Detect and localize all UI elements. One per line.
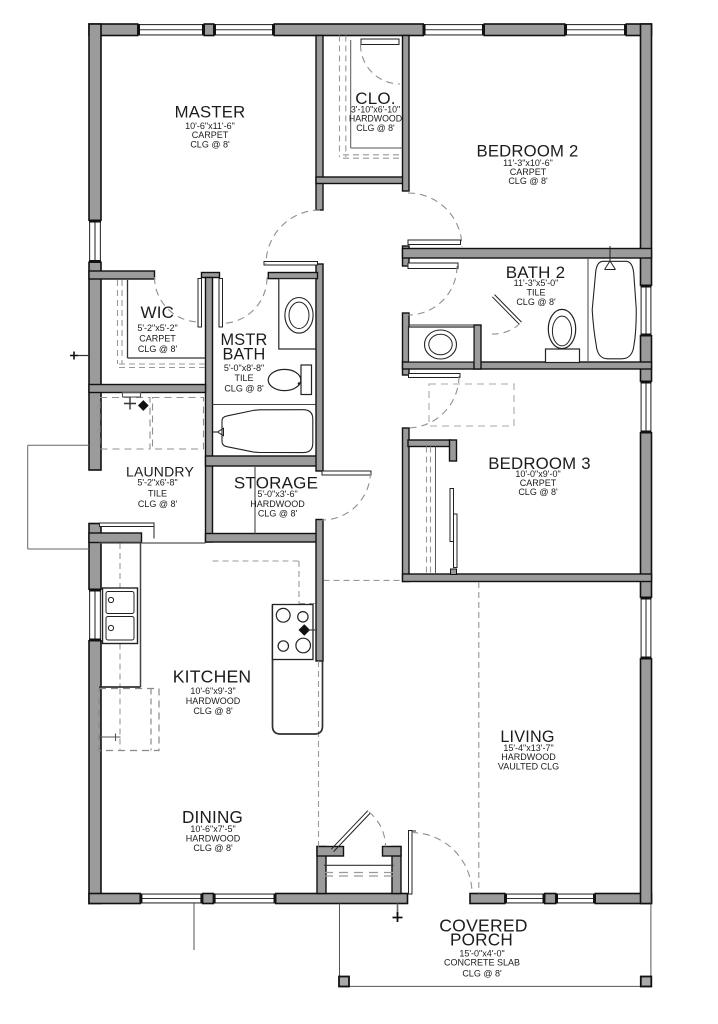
svg-text:CLG @ 8': CLG @ 8' xyxy=(508,176,548,186)
svg-text:WIC: WIC xyxy=(140,303,174,322)
svg-text:TILE: TILE xyxy=(148,488,167,498)
svg-text:MASTER: MASTER xyxy=(175,103,246,122)
svg-text:TILE: TILE xyxy=(234,373,253,383)
svg-text:CONCRETE SLAB: CONCRETE SLAB xyxy=(444,958,520,968)
svg-text:HARDWOOD: HARDWOOD xyxy=(186,696,241,706)
svg-text:5'-2"x5'-2": 5'-2"x5'-2" xyxy=(137,323,177,333)
svg-text:VAULTED CLG: VAULTED CLG xyxy=(498,762,559,772)
svg-text:CLG @ 8': CLG @ 8' xyxy=(138,344,178,354)
svg-text:CLG @ 8': CLG @ 8' xyxy=(258,508,298,518)
svg-text:CLG @ 8': CLG @ 8' xyxy=(193,843,233,853)
svg-text:KITCHEN: KITCHEN xyxy=(173,667,252,687)
svg-text:CLG @ 8': CLG @ 8' xyxy=(462,968,502,978)
svg-text:CLG @ 8': CLG @ 8' xyxy=(190,139,230,149)
svg-text:10'-6"x9'-3": 10'-6"x9'-3" xyxy=(190,686,235,696)
svg-text:PORCH: PORCH xyxy=(450,930,513,950)
svg-text:CARPET: CARPET xyxy=(139,334,176,344)
svg-text:5'-0"x3'-6": 5'-0"x3'-6" xyxy=(257,489,297,499)
svg-text:CLG @ 8': CLG @ 8' xyxy=(138,499,178,509)
svg-text:CLG @ 8': CLG @ 8' xyxy=(516,297,556,307)
svg-text:CLG @ 8': CLG @ 8' xyxy=(518,487,558,497)
svg-text:BATH: BATH xyxy=(222,345,265,363)
svg-text:CLG @ 8': CLG @ 8' xyxy=(193,706,233,716)
svg-text:5'-2"x6'-8": 5'-2"x6'-8" xyxy=(137,478,177,488)
svg-text:HARDWOOD: HARDWOOD xyxy=(250,499,305,509)
svg-text:CLG @ 8': CLG @ 8' xyxy=(356,123,395,133)
svg-text:HARDWOOD: HARDWOOD xyxy=(501,752,556,762)
svg-text:5'-0"x8'-8": 5'-0"x8'-8" xyxy=(224,363,264,373)
svg-text:CLG @ 8': CLG @ 8' xyxy=(224,383,264,393)
